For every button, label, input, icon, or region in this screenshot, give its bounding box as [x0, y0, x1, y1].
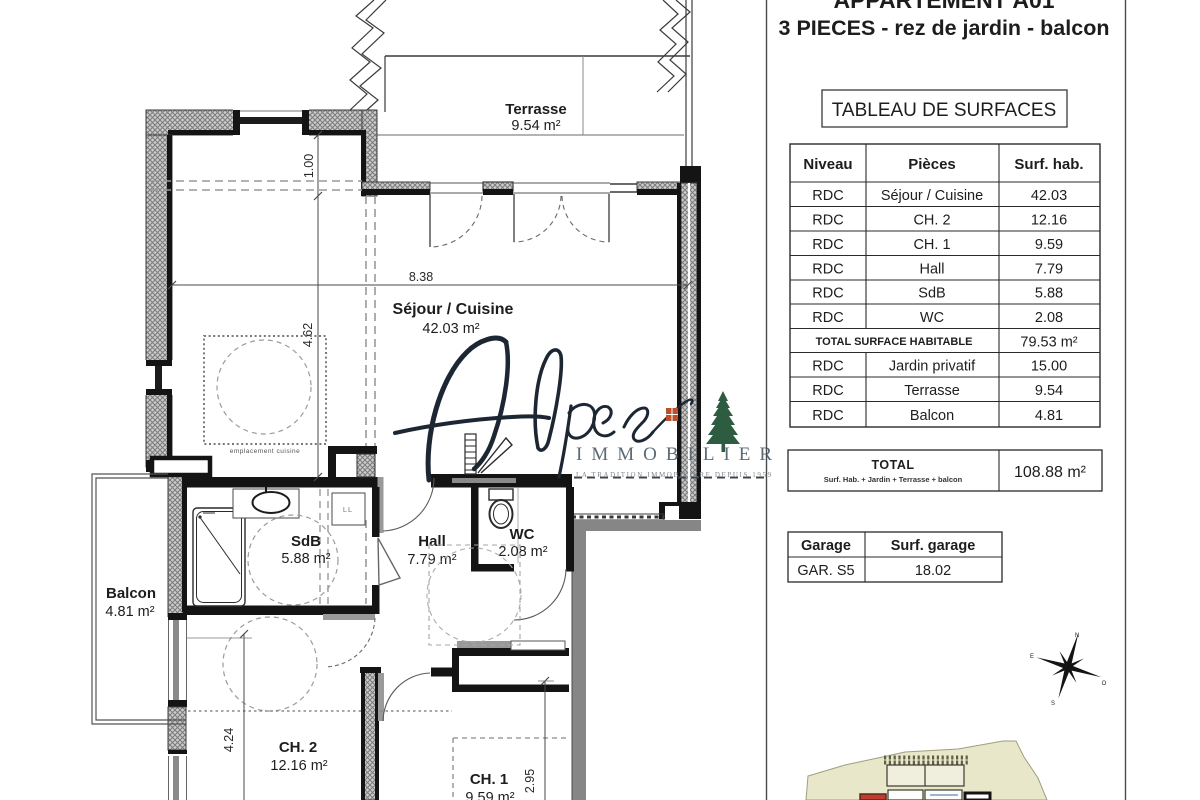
svg-text:RDC: RDC	[812, 383, 843, 399]
svg-text:5.88: 5.88	[1035, 286, 1063, 302]
svg-text:RDC: RDC	[812, 188, 843, 204]
svg-text:Terrasse: Terrasse	[505, 101, 566, 118]
svg-text:4.24: 4.24	[222, 728, 236, 752]
svg-text:9.59 m²: 9.59 m²	[465, 790, 514, 800]
svg-text:12.16: 12.16	[1031, 213, 1067, 229]
svg-text:GAR. S5: GAR. S5	[797, 563, 854, 579]
svg-text:TOTAL SURFACE HABITABLE: TOTAL SURFACE HABITABLE	[816, 336, 973, 348]
svg-text:Séjour / Cuisine: Séjour / Cuisine	[393, 301, 514, 318]
svg-text:RDC: RDC	[812, 213, 843, 229]
svg-text:5.88 m²: 5.88 m²	[281, 551, 330, 567]
svg-text:Balcon: Balcon	[106, 585, 156, 602]
svg-text:CH. 2: CH. 2	[279, 739, 317, 756]
svg-text:Jardin privatif: Jardin privatif	[889, 359, 976, 375]
svg-text:WC: WC	[510, 526, 535, 543]
svg-text:E: E	[1030, 654, 1034, 660]
svg-text:Surf. garage: Surf. garage	[891, 538, 976, 554]
svg-text:12.16 m²: 12.16 m²	[270, 758, 327, 774]
svg-text:LL: LL	[343, 505, 353, 514]
svg-text:7.79: 7.79	[1035, 262, 1063, 278]
svg-text:79.53 m²: 79.53 m²	[1020, 335, 1077, 351]
svg-text:RDC: RDC	[812, 310, 843, 326]
svg-text:2.08: 2.08	[1035, 310, 1063, 326]
svg-text:3 PIECES - rez de jardin - bal: 3 PIECES - rez de jardin - balcon	[779, 16, 1110, 40]
svg-text:TABLEAU DE SURFACES: TABLEAU DE SURFACES	[832, 100, 1057, 121]
svg-text:Hall: Hall	[920, 262, 945, 278]
svg-text:Balcon: Balcon	[910, 408, 954, 424]
svg-text:42.03: 42.03	[1031, 188, 1067, 204]
svg-text:15.00: 15.00	[1031, 359, 1067, 375]
svg-text:O: O	[1102, 681, 1107, 687]
svg-text:9.54 m²: 9.54 m²	[511, 118, 560, 134]
svg-text:APPARTEMENT A01: APPARTEMENT A01	[833, 0, 1054, 13]
svg-text:Surf. Hab. + Jardin + Terrasse: Surf. Hab. + Jardin + Terrasse + balcon	[824, 475, 963, 484]
svg-text:108.88 m²: 108.88 m²	[1014, 464, 1087, 481]
svg-text:4.62: 4.62	[301, 323, 315, 347]
svg-text:8.38: 8.38	[409, 270, 433, 284]
svg-text:RDC: RDC	[812, 286, 843, 302]
svg-text:2.08 m²: 2.08 m²	[498, 544, 547, 560]
svg-text:Niveau: Niveau	[803, 156, 852, 173]
svg-text:emplacement cuisine: emplacement cuisine	[230, 448, 301, 455]
svg-text:CH. 1: CH. 1	[470, 771, 508, 788]
svg-text:RDC: RDC	[812, 408, 843, 424]
svg-text:18.02: 18.02	[915, 563, 951, 579]
svg-text:7.79 m²: 7.79 m²	[407, 552, 456, 568]
svg-text:S: S	[1051, 701, 1055, 707]
svg-text:42.03 m²: 42.03 m²	[422, 321, 479, 337]
svg-text:N: N	[1075, 633, 1079, 639]
svg-text:Hall: Hall	[418, 533, 446, 550]
svg-text:IMMOBILIER: IMMOBILIER	[576, 444, 781, 465]
svg-text:Pièces: Pièces	[908, 156, 956, 173]
svg-text:CH. 1: CH. 1	[913, 237, 950, 253]
svg-text:SdB: SdB	[291, 533, 321, 550]
svg-text:1.00: 1.00	[302, 154, 316, 178]
svg-text:9.59: 9.59	[1035, 237, 1063, 253]
svg-text:RDC: RDC	[812, 237, 843, 253]
svg-text:WC: WC	[920, 310, 944, 326]
svg-text:9.54: 9.54	[1035, 383, 1063, 399]
svg-text:TOTAL: TOTAL	[871, 458, 914, 472]
svg-text:CH. 2: CH. 2	[913, 213, 950, 229]
svg-text:4.81: 4.81	[1035, 408, 1063, 424]
svg-text:Surf. hab.: Surf. hab.	[1014, 156, 1083, 173]
svg-text:Terrasse: Terrasse	[904, 383, 960, 399]
svg-text:2.95: 2.95	[523, 769, 537, 793]
svg-text:RDC: RDC	[812, 262, 843, 278]
svg-text:SdB: SdB	[918, 286, 945, 302]
svg-text:4.81 m²: 4.81 m²	[105, 604, 154, 620]
svg-text:RDC: RDC	[812, 359, 843, 375]
svg-text:Séjour / Cuisine: Séjour / Cuisine	[881, 188, 983, 204]
svg-text:Garage: Garage	[801, 538, 851, 554]
svg-text:LA TRADITION IMMOBILIERE DEPUI: LA TRADITION IMMOBILIERE DEPUIS 1959	[576, 471, 773, 479]
